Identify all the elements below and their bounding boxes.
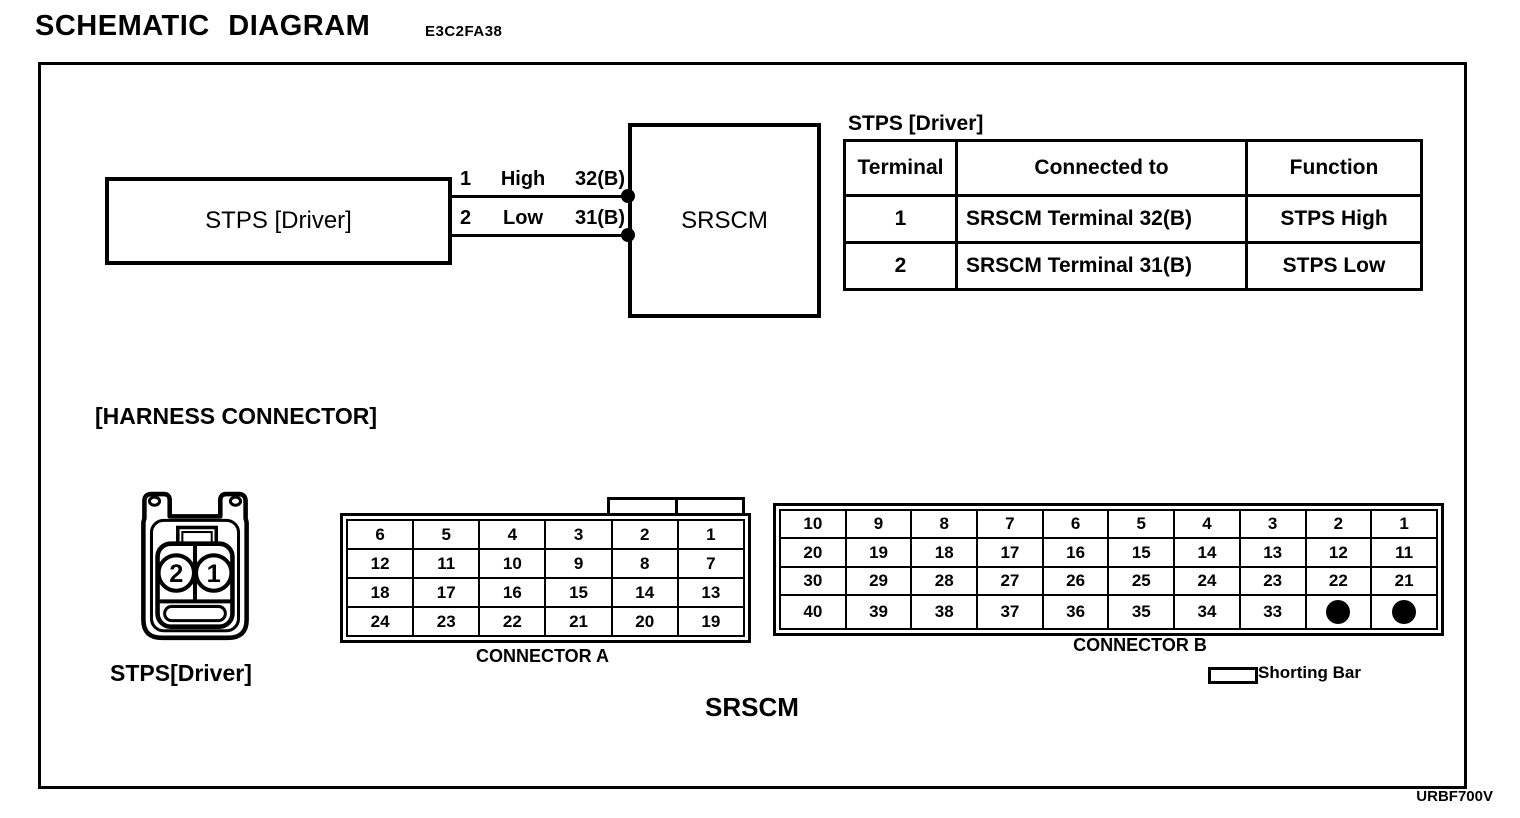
pin-row: 20191817161514131211 xyxy=(780,538,1437,566)
pin-cell: 24 xyxy=(1174,567,1240,595)
pin-cell: 37 xyxy=(977,595,1043,629)
pin-cell: 2 xyxy=(1306,510,1372,538)
connector-a-grid: 654321121110987181716151413242322212019 xyxy=(346,519,745,637)
pin-cell: 3 xyxy=(545,520,611,549)
pin-row: 181716151413 xyxy=(347,578,744,607)
wire-2-line xyxy=(449,234,628,237)
pin-cell: 7 xyxy=(678,549,744,578)
footer-code: URBF700V xyxy=(1370,788,1493,805)
col-header-connected-to: Connected to xyxy=(957,141,1247,196)
pin-cell: 19 xyxy=(678,607,744,636)
pin-cell: 14 xyxy=(1174,538,1240,566)
wire-2-signal: Low xyxy=(503,207,543,230)
connector-left-tab-hole xyxy=(149,497,159,505)
pin-cell: 22 xyxy=(479,607,545,636)
terminal-table-header-row: Terminal Connected to Function xyxy=(845,141,1422,196)
wire-1-node-dot xyxy=(621,189,635,203)
harness-section-label: [HARNESS CONNECTOR] xyxy=(95,403,377,430)
pin-row: 30292827262524232221 xyxy=(780,567,1437,595)
pin-cell: 2 xyxy=(612,520,678,549)
terminal-table-row: 2 SRSCM Terminal 31(B) STPS Low xyxy=(845,243,1422,290)
pin-cell: 4 xyxy=(479,520,545,549)
connected-to-cell: SRSCM Terminal 32(B) xyxy=(957,196,1247,243)
wire-1-pin: 32(B) xyxy=(575,168,625,191)
wire-1-label: 1 High 32(B) xyxy=(460,168,625,191)
connector-b: 1098765432120191817161514131211302928272… xyxy=(773,503,1444,636)
wire-1-terminal: 1 xyxy=(460,168,471,191)
pin-cell: 19 xyxy=(846,538,912,566)
stps-driver-box-label: STPS [Driver] xyxy=(205,207,352,235)
pin-cell: 20 xyxy=(612,607,678,636)
function-cell: STPS High xyxy=(1247,196,1422,243)
pin-cell: 8 xyxy=(612,549,678,578)
pin-cell: 9 xyxy=(846,510,912,538)
pin-cell: 13 xyxy=(1240,538,1306,566)
pin-cell: 20 xyxy=(780,538,846,566)
shorting-bar-legend-label: Shorting Bar xyxy=(1258,663,1361,683)
wire-2-pin: 31(B) xyxy=(575,207,625,230)
pin-cell: 12 xyxy=(347,549,413,578)
pin-cell: 35 xyxy=(1108,595,1174,629)
pin-cell: 5 xyxy=(1108,510,1174,538)
pin-cell: 34 xyxy=(1174,595,1240,629)
wire-2-node-dot xyxy=(621,228,635,242)
pin-cell: 4 xyxy=(1174,510,1240,538)
page-title: SCHEMATIC DIAGRAM xyxy=(35,10,370,43)
pin-cell: 38 xyxy=(911,595,977,629)
wire-2-terminal: 2 xyxy=(460,207,471,230)
stps-connector-label: STPS[Driver] xyxy=(110,660,252,687)
shorting-bar-dot-icon xyxy=(1392,600,1416,624)
wire-2-label: 2 Low 31(B) xyxy=(460,207,625,230)
pin-cell: 18 xyxy=(911,538,977,566)
pin-cell: 40 xyxy=(780,595,846,629)
pin-cell: 27 xyxy=(977,567,1043,595)
pin-cell: 3 xyxy=(1240,510,1306,538)
schematic-page: SCHEMATIC DIAGRAM E3C2FA38 STPS [Driver]… xyxy=(0,0,1520,818)
pin-cell: 1 xyxy=(1371,510,1437,538)
col-header-terminal: Terminal xyxy=(845,141,957,196)
pin-row: 121110987 xyxy=(347,549,744,578)
connector-b-grid: 1098765432120191817161514131211302928272… xyxy=(779,509,1438,630)
terminal-cell: 1 xyxy=(845,196,957,243)
wire-1-line xyxy=(449,195,628,198)
terminal-table-title: STPS [Driver] xyxy=(848,112,983,136)
pin-cell: 18 xyxy=(347,578,413,607)
pin-cell: 15 xyxy=(1108,538,1174,566)
pin-cell: 26 xyxy=(1043,567,1109,595)
srscm-box-label: SRSCM xyxy=(681,207,768,235)
pin-cell: 21 xyxy=(545,607,611,636)
pin-2-number: 2 xyxy=(169,560,183,588)
pin-cell: 17 xyxy=(977,538,1043,566)
pin-cell: 15 xyxy=(545,578,611,607)
pin-cell: 30 xyxy=(780,567,846,595)
pin-cell: 29 xyxy=(846,567,912,595)
connector-right-tab-hole xyxy=(230,497,240,505)
connector-b-label: CONNECTOR B xyxy=(1000,635,1280,656)
wire-1-signal: High xyxy=(501,168,545,191)
pin-cell: 24 xyxy=(347,607,413,636)
shorting-bar-icon xyxy=(1208,667,1258,684)
pin-cell: 28 xyxy=(911,567,977,595)
pin-cell: 21 xyxy=(1371,567,1437,595)
pin-cell: 11 xyxy=(413,549,479,578)
shorting-bar-dot-icon xyxy=(1326,600,1350,624)
pin-cell: 33 xyxy=(1240,595,1306,629)
pin-row: 242322212019 xyxy=(347,607,744,636)
pin-cell: 36 xyxy=(1043,595,1109,629)
pin-cell: 16 xyxy=(479,578,545,607)
function-cell: STPS Low xyxy=(1247,243,1422,290)
pin-row: 654321 xyxy=(347,520,744,549)
pin-cell: 10 xyxy=(479,549,545,578)
srscm-harness-label: SRSCM xyxy=(705,692,799,723)
terminal-table: Terminal Connected to Function 1 SRSCM T… xyxy=(843,139,1423,291)
pin-cell: 39 xyxy=(846,595,912,629)
connected-to-cell: SRSCM Terminal 31(B) xyxy=(957,243,1247,290)
pin-cell: 6 xyxy=(1043,510,1109,538)
pin-row: 4039383736353433 xyxy=(780,595,1437,629)
pin-cell: 22 xyxy=(1306,567,1372,595)
pin-cell: 12 xyxy=(1306,538,1372,566)
stps-connector-drawing: 2 1 xyxy=(131,488,259,654)
pin-cell: 14 xyxy=(612,578,678,607)
terminal-table-row: 1 SRSCM Terminal 32(B) STPS High xyxy=(845,196,1422,243)
pin-cell: 7 xyxy=(977,510,1043,538)
pin-cell: 10 xyxy=(780,510,846,538)
pin-cell: 25 xyxy=(1108,567,1174,595)
connector-a: 654321121110987181716151413242322212019 xyxy=(340,513,751,643)
pin-cell: 23 xyxy=(1240,567,1306,595)
pin-cell: 11 xyxy=(1371,538,1437,566)
pin-cell: 23 xyxy=(413,607,479,636)
stps-driver-box: STPS [Driver] xyxy=(105,177,452,265)
pin-1-number: 1 xyxy=(207,560,221,588)
diagram-code: E3C2FA38 xyxy=(425,23,502,40)
pin-cell: 17 xyxy=(413,578,479,607)
terminal-cell: 2 xyxy=(845,243,957,290)
shorted-pin-dot xyxy=(1371,595,1437,629)
pin-cell: 13 xyxy=(678,578,744,607)
pin-cell: 9 xyxy=(545,549,611,578)
pin-cell: 6 xyxy=(347,520,413,549)
shorted-pin-dot xyxy=(1306,595,1372,629)
pin-cell: 1 xyxy=(678,520,744,549)
col-header-function: Function xyxy=(1247,141,1422,196)
pin-cell: 5 xyxy=(413,520,479,549)
pin-cell: 16 xyxy=(1043,538,1109,566)
connector-a-label: CONNECTOR A xyxy=(340,646,745,667)
pin-row: 10987654321 xyxy=(780,510,1437,538)
pin-cell: 8 xyxy=(911,510,977,538)
srscm-box: SRSCM xyxy=(628,123,821,318)
